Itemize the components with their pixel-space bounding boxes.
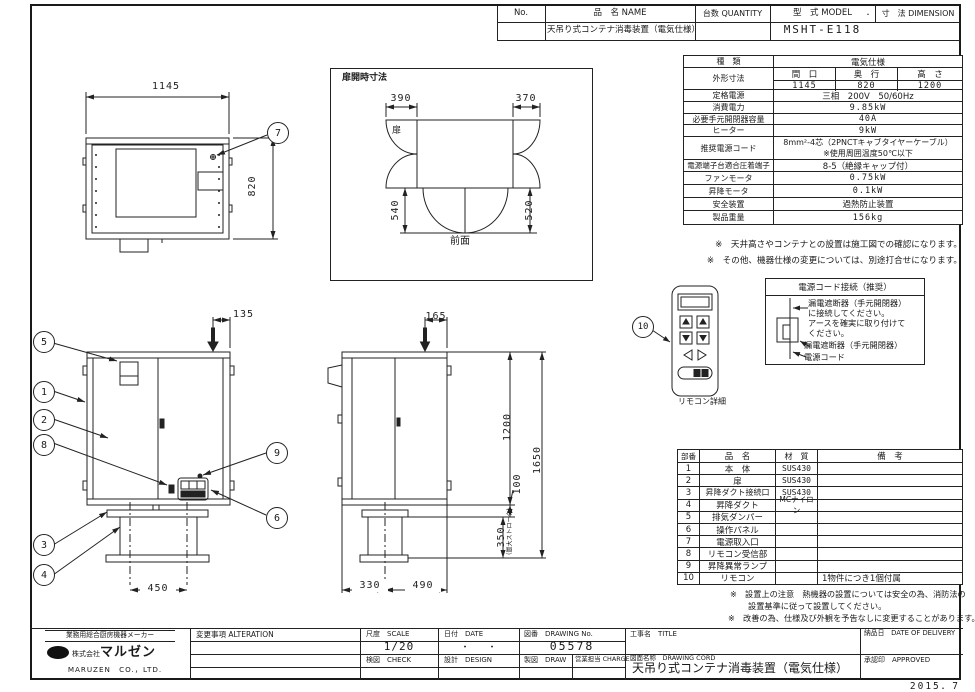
door-open-caption: 扉開時寸法: [342, 73, 387, 83]
side-elevation-drawing: [315, 300, 565, 605]
parts-row: 9 昇降異常ランプ: [678, 560, 962, 572]
balloon-number: 9: [274, 448, 280, 459]
part-material: [776, 548, 818, 559]
dim-door-swing-right: 520: [524, 192, 536, 228]
spec-row-value: 三相 200V 50/60Hz: [774, 90, 962, 101]
spec-row-label: 製品重量: [684, 211, 774, 224]
part-material: [776, 573, 818, 584]
dim-front-offset: 135: [233, 309, 254, 321]
spec-kind-value: 電気仕様: [774, 56, 962, 67]
header-dot: ．: [866, 9, 875, 19]
part-material: [776, 512, 818, 523]
dim-door-swing-left: 540: [390, 192, 402, 228]
parts-col-no: 部番: [678, 450, 700, 462]
balloon-number: 1: [41, 387, 47, 398]
parts-row: 2 扉 SUS430: [678, 474, 962, 486]
front-elevation-drawing: [25, 300, 305, 600]
balloon-number: 4: [41, 570, 47, 581]
power-note-3: アースを確実に取り付けて: [808, 319, 905, 328]
parts-row: 5 排気ダンパー: [678, 511, 962, 523]
balloon-2: 2: [33, 409, 55, 431]
part-material: [776, 561, 818, 572]
spec-row-value: 0.1kW: [774, 185, 962, 197]
spec-row-label: ファンモータ: [684, 172, 774, 184]
spec-row-value: 156kg: [774, 211, 962, 224]
spec-row-value: 8-5（絶縁キャップ付）: [774, 160, 962, 171]
parts-col-note: 備 考: [818, 450, 962, 462]
spec-row-value: 40A: [774, 114, 962, 124]
spec-row-label: 推奨電源コード: [684, 137, 774, 159]
part-no: 8: [678, 548, 700, 559]
balloon-number: 6: [274, 513, 280, 524]
spec-d-label: 奥 行: [836, 68, 898, 80]
spec-row-label: 定格電源: [684, 90, 774, 101]
spec-cord-value: 8mm²-4芯（2PNCTキャブタイヤーケーブル）: [783, 137, 953, 148]
spec-row-value: 9kW: [774, 125, 962, 136]
remote-detail-label: リモコン詳細: [672, 397, 732, 406]
part-name: 操作パネル: [700, 524, 776, 535]
dim-duct-pitch: 450: [140, 583, 176, 595]
spec-row-label: 昇降モータ: [684, 185, 774, 197]
part-no: 3: [678, 487, 700, 498]
spec-h-label: 高 さ: [898, 68, 962, 80]
product-name: 天吊り式コンテナ消毒装置（電気仕様）: [547, 26, 693, 36]
spec-row-label: 電源端子台適合圧着端子: [684, 160, 774, 171]
header-dim-label: 寸 法 DIMENSION: [875, 9, 961, 18]
front-face-label: 前面: [440, 236, 480, 248]
header-model-label: 型 式 MODEL: [770, 9, 875, 19]
header-qty-label: 台数 QUANTITY: [695, 9, 770, 18]
company-prefix: 株式会社: [72, 650, 100, 658]
spec-row-label: 必要手元開閉器容量: [684, 114, 774, 124]
spec-row-label: 消費電力: [684, 102, 774, 113]
parts-row: 3 昇降ダクト接続口 SUS430: [678, 486, 962, 498]
draw-label: 製図 DRAW: [524, 656, 566, 664]
spec-kind-label: 種 類: [684, 56, 774, 67]
part-name: 昇降ダクト: [700, 500, 776, 511]
note-improve: ※ 改善の為、仕様及び外観を予告なしに変更することがあります。: [728, 614, 975, 623]
balloon-number: 7: [275, 128, 281, 139]
note-other: ※ その他、機器仕様の変更については、別途打合せになります。: [700, 257, 962, 267]
balloon-3: 3: [33, 534, 55, 556]
header-name-label: 品 名 NAME: [545, 9, 695, 19]
balloon-number: 2: [41, 415, 47, 426]
part-name: 排気ダンパー: [700, 512, 776, 523]
part-name: 昇降ダクト接続口: [700, 487, 776, 498]
part-no: 1: [678, 463, 700, 474]
parts-col-material: 材 質: [776, 450, 818, 462]
spec-row-label: ヒーター: [684, 125, 774, 136]
date-value: ・ ・: [438, 643, 519, 653]
dim-base-left: 330: [352, 580, 388, 592]
alteration-label: 変更事項 ALTERATION: [196, 631, 274, 640]
balloon-10: 10: [632, 316, 654, 338]
date-label: 日付 DATE: [444, 630, 483, 638]
spec-row-value: 9.85kW: [774, 102, 962, 113]
part-no: 4: [678, 500, 700, 511]
dim-top-width: 1145: [144, 81, 188, 93]
dim-door-right: 370: [509, 93, 543, 105]
spec-w-label: 間 口: [774, 68, 836, 80]
issue-date: 2015．7: [880, 682, 960, 692]
project-title-label: 工事名 TITLE: [630, 630, 677, 638]
spec-row-value: 過熱防止装置: [774, 198, 962, 210]
parts-row: 8 リモコン受信部: [678, 547, 962, 559]
drawing-sheet: No. 品 名 NAME 台数 QUANTITY 型 式 MODEL ． 寸 法…: [0, 0, 975, 692]
part-material: [776, 524, 818, 535]
parts-row: 7 電源取入口: [678, 535, 962, 547]
part-name: 電源取入口: [700, 536, 776, 547]
door-open-drawing: [330, 68, 593, 281]
scale-value: 1/20: [360, 641, 438, 654]
check-label: 検図 CHECK: [366, 656, 411, 664]
parts-row: 1 本 体 SUS430: [678, 462, 962, 474]
dim-base-right: 490: [405, 580, 441, 592]
part-name: 本 体: [700, 463, 776, 474]
parts-row: 6 操作パネル: [678, 523, 962, 535]
balloon-8: 8: [33, 434, 55, 456]
part-material: MCナイロン: [776, 500, 818, 511]
part-material: SUS430: [776, 463, 818, 474]
part-material: SUS430: [776, 475, 818, 486]
spec-cord-note: ※使用周囲温度50℃以下: [823, 148, 913, 159]
note-ceiling: ※ 天井高さやコンテナとの設置は施工図での確認になります。: [700, 241, 962, 251]
balloon-number: 3: [41, 540, 47, 551]
spec-outline-label: 外形寸法: [684, 68, 774, 89]
design-label: 設計 DESIGN: [444, 656, 492, 664]
approved-label: 承認印 APPROVED: [864, 656, 930, 664]
drawing-no-value: 05578: [519, 640, 625, 653]
part-note: 1物件につき1個付属: [818, 572, 962, 584]
part-material: [776, 536, 818, 547]
balloon-7: 7: [267, 122, 289, 144]
delivery-label: 納品日 DATE OF DELIVERY: [864, 630, 955, 638]
part-no: 2: [678, 475, 700, 486]
remote-control-drawing: [620, 280, 770, 415]
company-brand: マルゼン: [100, 645, 156, 660]
balloon-number: 10: [638, 322, 649, 332]
dim-gap: 100: [512, 468, 524, 500]
part-no: 7: [678, 536, 700, 547]
parts-table: 部番 品 名 材 質 備 考 1 本 体 SUS430 2 扉 SUS430 3…: [677, 449, 963, 585]
charge-label: 営業担当 CHARGE: [575, 656, 630, 663]
spec-table: 種 類 電気仕様 外形寸法 間 口 奥 行 高 さ 1145 820 1200 …: [683, 55, 963, 225]
drawing-name-value: 天吊り式コンテナ消毒装置（電気仕様）: [632, 662, 848, 676]
power-note-1: 漏電遮断器（手元開閉器）: [808, 299, 906, 308]
part-no: 10: [678, 573, 700, 584]
balloon-number: 8: [41, 440, 47, 451]
dim-side-offset: 165: [419, 311, 453, 323]
part-name: リモコン: [700, 573, 776, 584]
balloon-5: 5: [33, 331, 55, 353]
drawing-no-label: 図番 DRAWING No.: [524, 630, 593, 638]
part-name: 扉: [700, 475, 776, 486]
model-number: MSHT-E118: [770, 24, 875, 37]
company-name: 株式会社マルゼン: [72, 646, 156, 661]
part-name: 昇降異常ランプ: [700, 561, 776, 572]
dim-body-height: 1200: [502, 409, 514, 445]
power-cord-label: 電源コード: [804, 353, 845, 362]
balloon-4: 4: [33, 564, 55, 586]
parts-col-name: 品 名: [700, 450, 776, 462]
dim-total-height: 1650: [532, 442, 544, 478]
dim-stroke-note: （最大ストローク）: [508, 501, 515, 561]
parts-row: 4 昇降ダクト MCナイロン: [678, 499, 962, 511]
maruzen-logo-icon: [47, 646, 69, 659]
part-no: 9: [678, 561, 700, 572]
balloon-9: 9: [266, 442, 288, 464]
door-label: 扉: [392, 126, 401, 136]
maker-tagline: 業務用総合厨房機器メーカー: [45, 630, 175, 642]
power-note-2: に接続してください。: [808, 309, 889, 318]
balloon-number: 5: [41, 337, 47, 348]
part-no: 5: [678, 512, 700, 523]
dim-top-depth: 820: [247, 171, 259, 201]
scale-label: 尺度 SCALE: [366, 630, 409, 638]
spec-row-value: 0.75kW: [774, 172, 962, 184]
power-note-4: ください。: [808, 329, 849, 338]
company-en: MARUZEN CO.，LTD.: [45, 666, 185, 674]
part-no: 6: [678, 524, 700, 535]
balloon-1: 1: [33, 381, 55, 403]
balloon-6: 6: [266, 507, 288, 529]
part-name: リモコン受信部: [700, 548, 776, 559]
header-no-label: No.: [497, 9, 545, 19]
note-install-1: ※ 設置上の注意 熱機器の設置については安全の為、消防法の: [730, 590, 966, 599]
power-cord-title: 電源コード接続（推奨）: [766, 279, 924, 296]
dim-door-left: 390: [384, 93, 418, 105]
spec-row-label: 安全装置: [684, 198, 774, 210]
note-install-2: 設置基準に従って設置してください。: [748, 602, 886, 611]
power-breaker-label: 漏電遮断器（手元開閉器）: [804, 341, 902, 350]
parts-row: 10 リモコン 1物件につき1個付属: [678, 572, 962, 584]
